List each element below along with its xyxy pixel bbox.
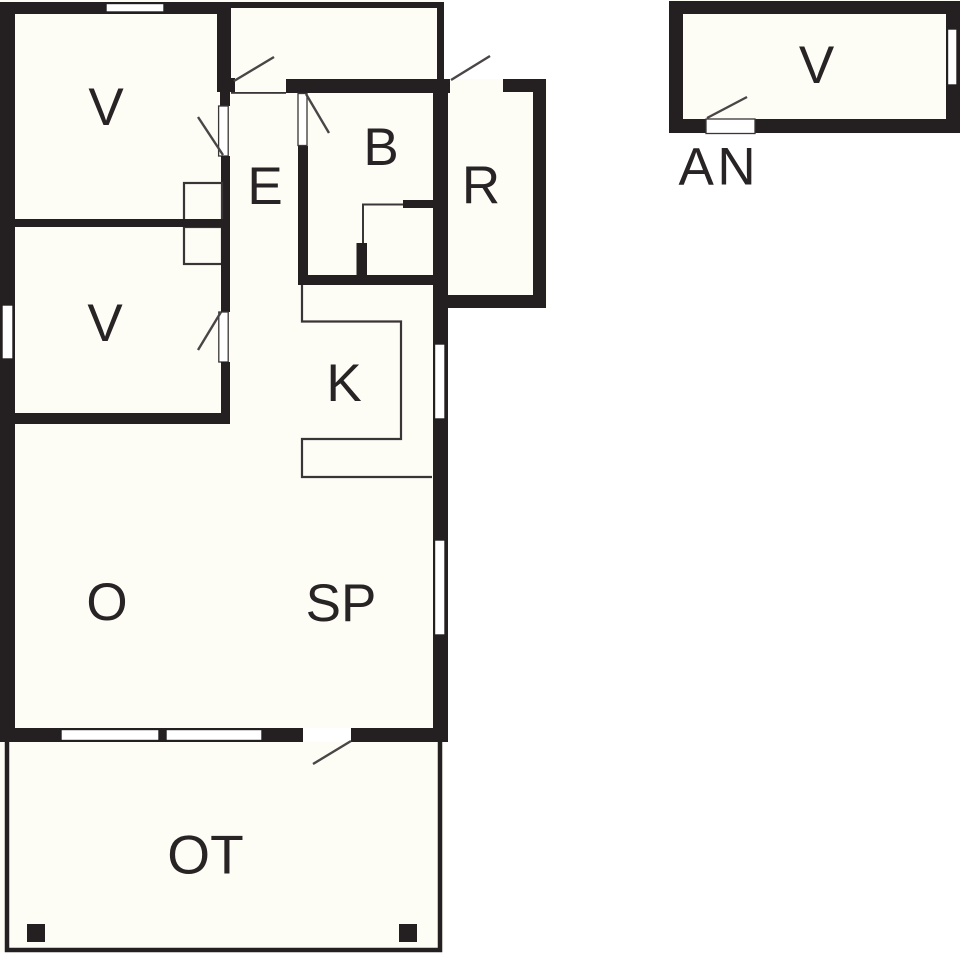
svg-text:V: V [88,78,124,137]
svg-text:E: E [247,157,282,216]
svg-text:R: R [462,156,500,215]
svg-text:B: B [363,118,398,177]
svg-text:SP: SP [306,574,377,633]
svg-text:O: O [86,573,127,632]
svg-text:OT: OT [167,824,243,886]
svg-text:AN: AN [679,138,760,197]
svg-text:V: V [87,294,123,353]
svg-text:K: K [326,354,361,413]
svg-text:V: V [799,36,835,95]
